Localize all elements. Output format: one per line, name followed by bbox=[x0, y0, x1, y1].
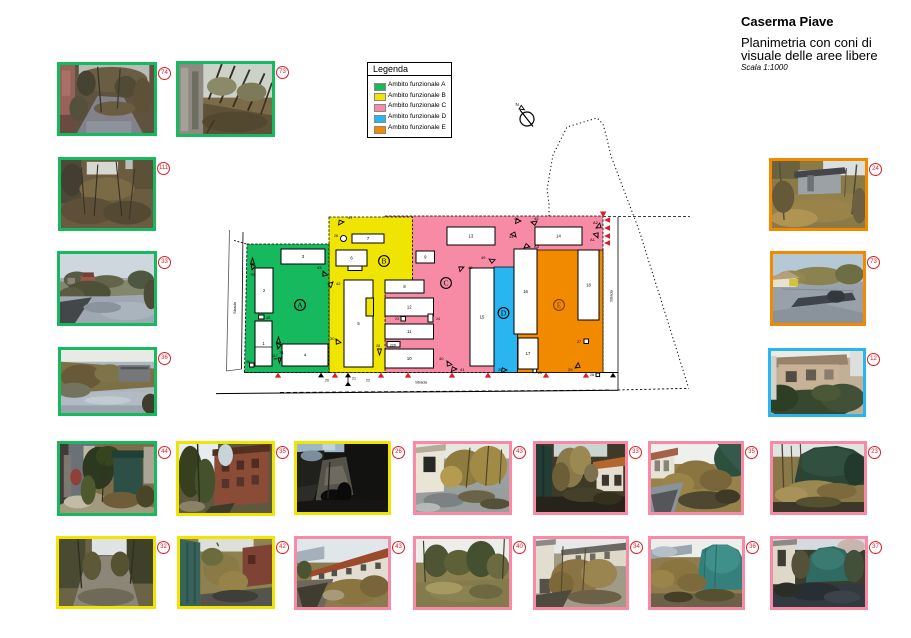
svg-text:A1: A1 bbox=[590, 237, 596, 242]
svg-text:22: 22 bbox=[366, 379, 370, 383]
svg-text:26: 26 bbox=[538, 371, 542, 375]
svg-text:21: 21 bbox=[352, 377, 356, 381]
svg-text:A2: A2 bbox=[593, 220, 599, 225]
svg-text:30: 30 bbox=[330, 336, 335, 341]
svg-text:43: 43 bbox=[317, 265, 322, 270]
svg-text:16: 16 bbox=[523, 289, 528, 294]
svg-text:Strada: Strada bbox=[415, 380, 428, 385]
svg-text:N: N bbox=[516, 102, 519, 107]
svg-text:14: 14 bbox=[556, 234, 561, 239]
svg-text:17: 17 bbox=[526, 351, 531, 356]
svg-text:44: 44 bbox=[509, 234, 514, 239]
svg-text:A3: A3 bbox=[534, 244, 540, 249]
svg-text:29: 29 bbox=[568, 367, 573, 372]
svg-text:47: 47 bbox=[348, 215, 353, 220]
svg-text:26: 26 bbox=[334, 234, 338, 238]
svg-text:24: 24 bbox=[436, 317, 440, 321]
svg-text:117: 117 bbox=[272, 354, 278, 358]
svg-text:18: 18 bbox=[586, 283, 591, 288]
svg-text:41: 41 bbox=[460, 367, 465, 372]
svg-text:27: 27 bbox=[577, 340, 581, 344]
svg-text:48: 48 bbox=[468, 265, 473, 270]
svg-text:C: C bbox=[443, 279, 448, 288]
svg-text:28: 28 bbox=[590, 373, 594, 377]
svg-text:42: 42 bbox=[336, 281, 341, 286]
svg-text:20: 20 bbox=[325, 379, 329, 383]
svg-text:15: 15 bbox=[480, 315, 485, 320]
svg-text:40: 40 bbox=[439, 356, 444, 361]
svg-text:Strada: Strada bbox=[232, 301, 237, 314]
svg-text:19: 19 bbox=[266, 316, 270, 320]
svg-text:25: 25 bbox=[498, 367, 503, 372]
svg-text:11: 11 bbox=[407, 329, 412, 334]
svg-text:13: 13 bbox=[469, 234, 474, 239]
svg-text:23: 23 bbox=[395, 317, 399, 321]
svg-text:B: B bbox=[381, 257, 386, 266]
svg-text:12: 12 bbox=[407, 305, 412, 310]
svg-text:A: A bbox=[297, 301, 303, 310]
svg-text:D: D bbox=[501, 309, 507, 318]
svg-text:79: 79 bbox=[250, 272, 255, 277]
svg-text:46: 46 bbox=[514, 216, 519, 221]
svg-text:74: 74 bbox=[279, 350, 284, 355]
svg-text:E: E bbox=[557, 301, 562, 310]
svg-text:49: 49 bbox=[481, 255, 486, 260]
svg-text:10: 10 bbox=[407, 356, 412, 361]
svg-text:Strada: Strada bbox=[609, 289, 614, 302]
svg-text:229: 229 bbox=[390, 344, 396, 348]
svg-text:45: 45 bbox=[534, 216, 539, 221]
svg-text:28: 28 bbox=[376, 344, 380, 348]
